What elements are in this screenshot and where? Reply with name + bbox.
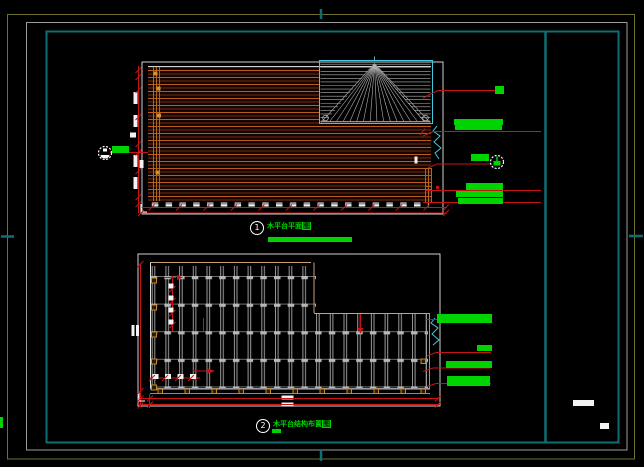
plan1-callout-chip[interactable] — [495, 86, 504, 94]
plan1-left-dim-text — [130, 92, 144, 189]
plan1-callout-bar[interactable] — [471, 154, 489, 161]
plan1-break-line — [433, 126, 441, 159]
titleblock-text — [573, 400, 594, 406]
plan2-callout-bar[interactable] — [446, 361, 492, 368]
plan2-callout-bar[interactable] — [477, 345, 492, 351]
plan2-group[interactable] — [132, 254, 492, 408]
plan2-number-bubble[interactable]: 2 — [256, 419, 270, 433]
plan1-number-bubble[interactable]: 1 — [250, 221, 264, 235]
plan1-axis-bubble — [99, 147, 112, 160]
plan1-detail-bubble-right — [491, 156, 504, 169]
plan1-deck-left — [148, 66, 319, 201]
stray-green-mark — [0, 417, 3, 428]
plan2-grid-left — [151, 266, 316, 388]
cad-linework — [0, 0, 644, 467]
cad-canvas[interactable]: 1 木平台平面图 2 木平台结构布置图 — [0, 0, 644, 467]
plan2-grid-right — [316, 313, 428, 388]
plan1-title-underline — [268, 237, 352, 242]
plan1-callout-bar[interactable] — [466, 183, 503, 190]
plan1-callout-bar[interactable] — [455, 125, 502, 130]
plan1-caption[interactable]: 1 木平台平面图 — [250, 221, 311, 235]
plan2-callout-bar[interactable] — [447, 376, 490, 386]
plan2-title: 木平台结构布置图 — [273, 419, 331, 429]
titleblock-text — [600, 423, 609, 429]
plan1-callout-bar[interactable] — [456, 191, 503, 197]
plan1-deck-right — [319, 124, 431, 201]
plan2-callout-bar[interactable] — [437, 314, 492, 323]
plan1-title: 木平台平面图 — [267, 221, 311, 231]
plan1-callout-bar[interactable] — [458, 198, 503, 204]
plan2-caption[interactable]: 2 木平台结构布置图 — [256, 419, 331, 433]
plan1-axis-label-bar[interactable] — [112, 146, 129, 153]
